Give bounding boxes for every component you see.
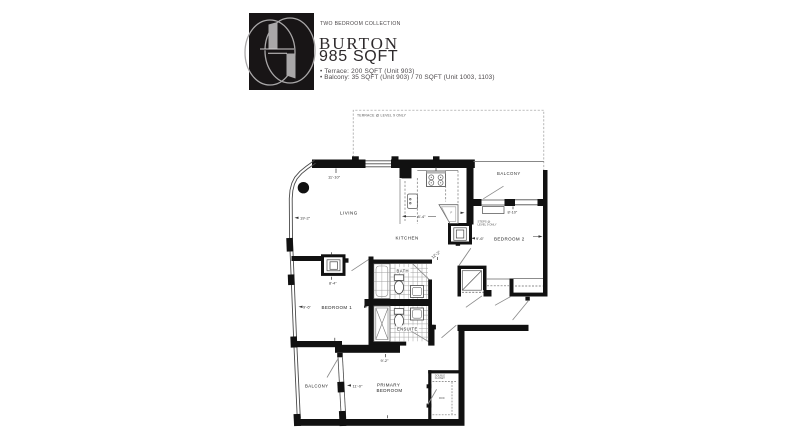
svg-text:ROD: ROD: [439, 397, 445, 400]
svg-text:LEVEL 9 ONLY: LEVEL 9 ONLY: [478, 223, 497, 227]
svg-text:11'-0": 11'-0": [353, 383, 363, 388]
svg-text:9'-2": 9'-2": [381, 358, 390, 363]
svg-text:BEDROOM: BEDROOM: [377, 388, 403, 393]
svg-text:ENSUITE: ENSUITE: [397, 326, 418, 331]
svg-text:BEDROOM 1: BEDROOM 1: [322, 305, 353, 310]
svg-text:TERRACE @ LEVEL 9 ONLY: TERRACE @ LEVEL 9 ONLY: [357, 114, 407, 118]
svg-text:BEDROOM 2: BEDROOM 2: [494, 236, 525, 241]
svg-text:11'-10": 11'-10": [328, 174, 341, 179]
svg-text:PRIMARY: PRIMARY: [377, 382, 400, 387]
svg-text:9'-6": 9'-6": [476, 236, 485, 241]
svg-text:BALCONY: BALCONY: [305, 384, 328, 389]
svg-text:12'-2": 12'-2": [430, 249, 442, 260]
svg-text:8'-4": 8'-4": [329, 281, 337, 285]
svg-text:F: F: [451, 211, 453, 215]
svg-text:KITCHEN: KITCHEN: [396, 236, 419, 241]
svg-text:CLOSET: CLOSET: [435, 377, 445, 380]
svg-text:19'-2": 19'-2": [300, 215, 311, 220]
svg-text:9'-6": 9'-6": [303, 304, 312, 309]
svg-text:LIVING: LIVING: [340, 210, 358, 215]
svg-text:8'-4": 8'-4": [418, 214, 427, 219]
svg-text:BATH: BATH: [397, 268, 409, 273]
svg-text:8'-10": 8'-10": [508, 210, 518, 214]
svg-text:BALCONY: BALCONY: [497, 171, 521, 176]
